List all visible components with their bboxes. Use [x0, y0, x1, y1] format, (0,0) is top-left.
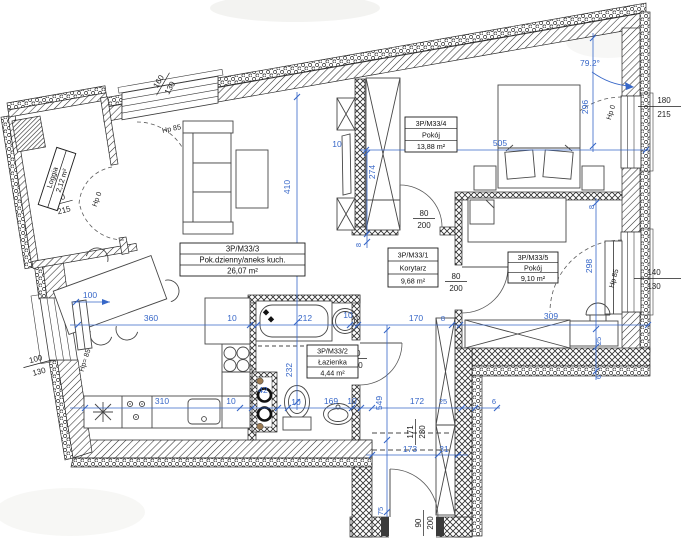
nightstand-left	[474, 166, 496, 190]
dim-10-top: 10	[332, 139, 342, 149]
floor-plan-drawing: 410 274 8 10 505 296 79.2° 298 8 25 6 36…	[0, 0, 681, 542]
coffee-table	[236, 150, 268, 208]
niche-width: 171	[406, 425, 415, 439]
loggia-pillar	[12, 116, 46, 152]
room-label-corridor: 3P/M33/1 Korytarz 9,68 m²	[388, 248, 438, 287]
door-room5-dim: 80 200	[445, 272, 467, 293]
dim-10f: 10	[347, 396, 357, 406]
dim-75: 75	[376, 507, 385, 515]
door-entry	[390, 469, 438, 517]
wardrobe-corridor	[436, 318, 455, 515]
niche-height: 230	[418, 425, 427, 439]
room-label-bedroom-small: 3P/M33/5 Pokój 9,10 m²	[508, 252, 558, 283]
dim-6a: 6	[594, 375, 603, 379]
dim-living-height: 410	[282, 180, 292, 194]
floor-plan-canvas: 410 274 8 10 505 296 79.2° 298 8 25 6 36…	[0, 0, 681, 542]
dim-310: 310	[155, 396, 169, 406]
dim-173: 173	[403, 444, 417, 454]
dim-10c: 10	[343, 310, 353, 320]
dim-8c: 8	[441, 314, 445, 323]
sofa	[183, 121, 233, 234]
pillow	[470, 200, 494, 224]
dim-298: 298	[584, 259, 594, 273]
dim-angle: 79.2°	[580, 58, 600, 68]
dim-360: 360	[144, 313, 158, 323]
dim-100: 100	[83, 290, 97, 300]
dim-10e: 10	[291, 397, 301, 407]
door-entry-height: 200	[426, 516, 435, 530]
dim-169: 169	[324, 396, 338, 406]
bedroom-small-id: 3P/M33/5	[518, 253, 549, 262]
window-left-height: 130	[31, 366, 47, 378]
hp-left: Hp= 85	[77, 348, 93, 373]
kitchen-stove	[222, 344, 250, 396]
hp-right-top: Hp 0	[604, 104, 617, 121]
bedroom-small-name: Pokój	[524, 264, 542, 273]
dim-6b: 6	[492, 397, 496, 406]
door-room5-height: 200	[449, 284, 463, 293]
door-room4-width: 80	[420, 209, 429, 218]
dim-10b: 10	[227, 313, 237, 323]
dim-505: 505	[493, 138, 507, 148]
bathroom-id: 3P/M33/2	[317, 347, 348, 356]
door-bathroom	[360, 343, 402, 385]
washbasin	[324, 404, 353, 425]
dim-309: 309	[544, 311, 558, 321]
tv-unit	[337, 98, 355, 230]
living-name: Pok.dzienny/aneks kuch.	[199, 256, 285, 265]
dim-549: 549	[374, 396, 384, 410]
wardrobe-bedroom-large	[366, 78, 400, 230]
window-right-width: 140	[647, 268, 661, 277]
dim-8b: 8	[587, 205, 596, 209]
dim-42: 42	[258, 385, 268, 395]
living-id: 3P/M33/3	[226, 245, 259, 254]
tv-icon	[342, 134, 351, 195]
dim-31: 31	[439, 444, 449, 454]
corridor-area: 9,68 m²	[401, 277, 426, 286]
dim-274: 274	[367, 165, 377, 179]
bedroom-large-area: 13,88 m²	[417, 142, 446, 151]
door-entry-width: 90	[414, 518, 423, 527]
door-right-width: 180	[657, 96, 671, 105]
corridor-name: Korytarz	[400, 264, 427, 273]
bathroom-name: Łazienka	[318, 358, 347, 367]
dim-25a: 25	[594, 337, 603, 345]
bedroom-large-name: Pokój	[422, 131, 440, 140]
door-room4-dim: 80 200	[413, 209, 435, 230]
dim-212: 212	[298, 313, 312, 323]
door-right-height: 215	[657, 110, 671, 119]
bathroom-area: 4,44 m²	[320, 369, 345, 378]
room-label-living: 3P/M33/3 Pok.dzienny/aneks kuch. 26,07 m…	[180, 243, 305, 276]
nightstand-right	[582, 166, 604, 190]
dim-232: 232	[284, 363, 294, 377]
dim-10d: 10	[226, 396, 236, 406]
freezer-star-icon	[93, 402, 113, 422]
dim-296: 296	[580, 100, 590, 114]
window-right-height: 130	[647, 282, 661, 291]
bedroom-small-area: 9,10 m²	[521, 274, 546, 283]
bedroom-large-id: 3P/M33/4	[416, 119, 447, 128]
dim-172: 172	[410, 396, 424, 406]
kitchen-sink	[188, 399, 220, 424]
plumbing-shaft	[252, 372, 277, 432]
room-label-bedroom-large: 3P/M33/4 Pokój 13,88 m²	[405, 117, 457, 152]
living-area: 26,07 m²	[227, 267, 258, 276]
single-bed	[468, 198, 566, 242]
dim-170: 170	[409, 313, 423, 323]
corridor-id: 3P/M33/1	[398, 251, 429, 260]
door-bedroom-small	[462, 267, 508, 313]
hp-loggia: Hp 0	[90, 190, 104, 207]
niche-dim: 171 230	[406, 419, 427, 445]
bathtub	[256, 301, 332, 346]
loggia-door-swing	[79, 167, 124, 240]
room-label-bathroom: 3P/M33/2 Łazienka 4,44 m²	[307, 345, 358, 378]
dim-25b: 25	[439, 397, 447, 406]
door-room5-width: 80	[452, 272, 461, 281]
dim-8a: 8	[354, 243, 363, 247]
hp-top: Hp 85	[161, 122, 182, 135]
door-room4-height: 200	[417, 221, 431, 230]
